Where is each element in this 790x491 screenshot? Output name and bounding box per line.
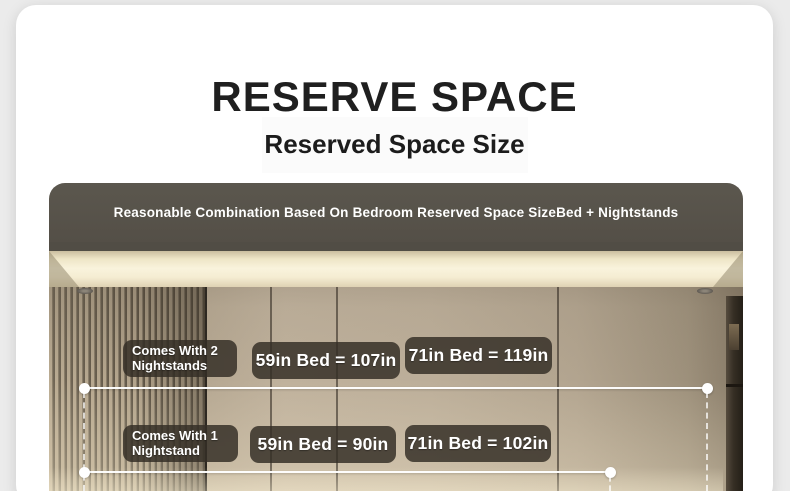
page-subtitle: Reserved Space Size [16,129,773,160]
bedroom-image: Comes With 2 Nightstands 59in Bed = 107i… [49,242,743,491]
shelf-divider [726,384,743,387]
size-tag-line: Nightstands [132,359,207,374]
size-tag-2-nightstands: Comes With 2 Nightstands [123,340,237,377]
wardrobe-shelf [726,296,743,491]
dimension-line-row2 [84,471,610,473]
shelf-books [729,324,739,350]
measurement-label: 71in Bed = 119in [405,337,552,374]
size-tag-line: Nightstand [132,444,200,459]
measurement-label: 71in Bed = 102in [405,425,551,462]
measurement-label: 59in Bed = 107in [252,342,400,379]
dashed-guide-line [609,476,611,491]
ceiling-led-glow [49,251,743,287]
size-tag-1-nightstand: Comes With 1 Nightstand [123,425,238,462]
ceiling-band [49,242,743,251]
dimension-line-row1 [84,387,708,389]
recessed-light-icon [77,288,93,294]
size-tag-line: Comes With 1 [132,429,218,444]
size-tag-line: Comes With 2 [132,344,218,359]
recessed-light-icon [697,288,713,294]
page: RESERVE SPACE Reserved Space Size Reason… [0,0,790,491]
measurement-label: 59in Bed = 90in [250,426,396,463]
info-banner: Reasonable Combination Based On Bedroom … [49,183,743,242]
info-banner-text: Reasonable Combination Based On Bedroom … [49,205,743,220]
wall-seam [557,287,559,491]
content-card: RESERVE SPACE Reserved Space Size Reason… [16,5,773,491]
page-title: RESERVE SPACE [16,73,773,121]
dashed-guide-line [706,392,708,491]
dashed-guide-line [83,392,85,491]
